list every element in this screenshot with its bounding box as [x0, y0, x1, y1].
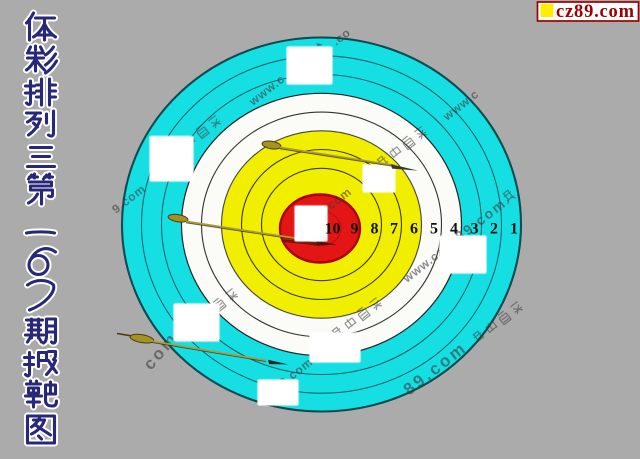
svg-text:7: 7 — [390, 221, 398, 238]
svg-text:cz89.com: cz89.com — [556, 2, 635, 22]
svg-text:8: 8 — [371, 221, 379, 238]
svg-text:6: 6 — [410, 221, 418, 238]
svg-text:9: 9 — [351, 221, 359, 238]
svg-text:1: 1 — [510, 221, 518, 238]
svg-text:5: 5 — [430, 221, 438, 238]
svg-text:2: 2 — [490, 221, 498, 238]
svg-text:4: 4 — [450, 221, 458, 238]
svg-text:3: 3 — [471, 221, 479, 238]
svg-text:10: 10 — [325, 221, 341, 238]
